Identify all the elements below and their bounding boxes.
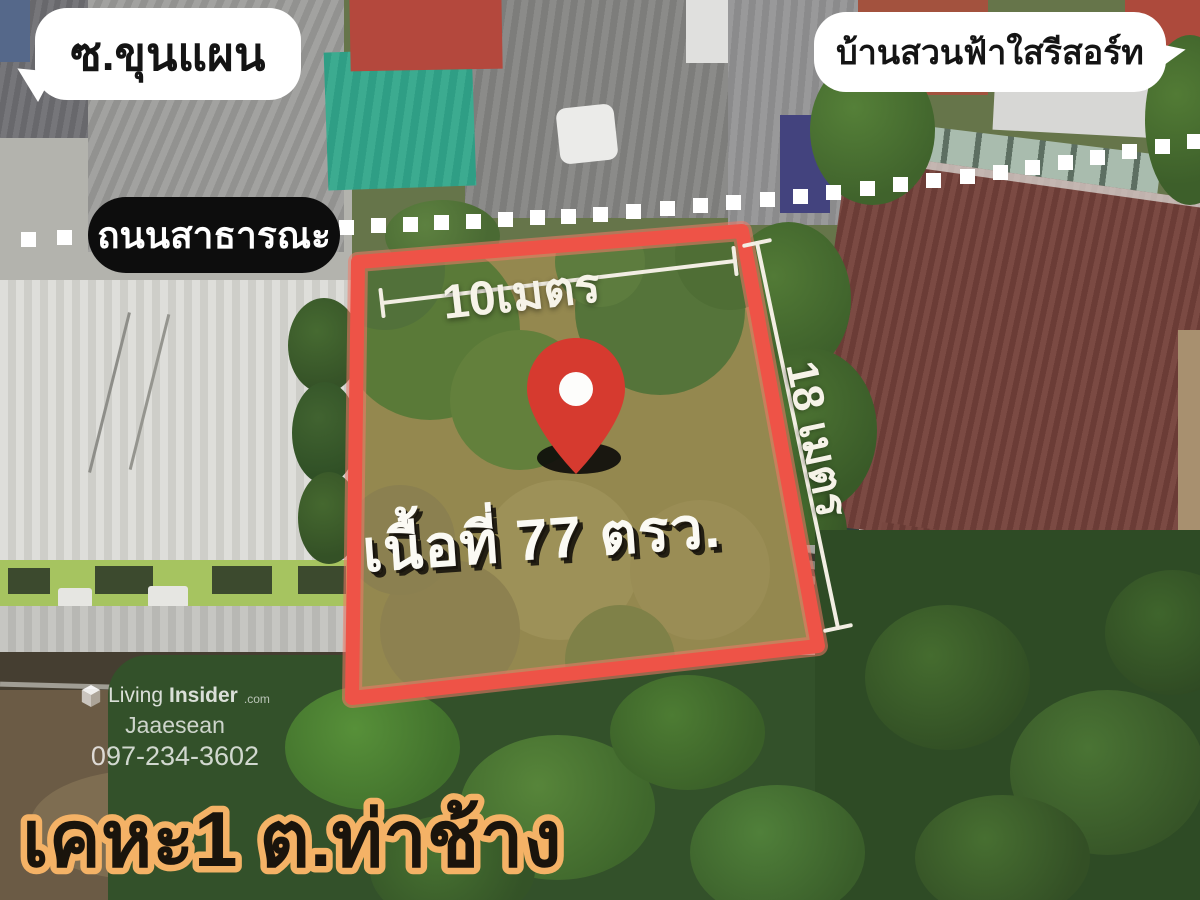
lower-roof-strip	[0, 606, 356, 658]
public-road-label-pill: ถนนสาธารณะ	[88, 197, 340, 273]
dotted-line-square	[926, 173, 941, 188]
dotted-line-square	[693, 198, 708, 213]
public-road-label: ถนนสาธารณะ	[97, 206, 331, 265]
dotted-line-square	[434, 215, 449, 230]
white-car	[555, 103, 619, 165]
dotted-line-square	[1187, 134, 1200, 149]
aerial-photo-canvas: ซ.ขุนแผน บ้านสวนฟ้าใสรีสอร์ท ถนนสาธารณะ …	[0, 0, 1200, 900]
dotted-line-square	[57, 230, 72, 245]
tree-mass	[865, 605, 1030, 750]
dotted-line-square	[1090, 150, 1105, 165]
dotted-line-square	[1025, 160, 1040, 175]
dotted-line-square	[593, 207, 608, 222]
window	[212, 566, 272, 594]
dotted-line-square	[993, 165, 1008, 180]
dotted-line-square	[760, 192, 775, 207]
dotted-line-square	[561, 209, 576, 224]
dotted-line-square	[893, 177, 908, 192]
dotted-line-square	[498, 212, 513, 227]
dotted-line-square	[793, 189, 808, 204]
street-label-bubble: ซ.ขุนแผน	[35, 8, 301, 100]
dotted-line-square	[660, 201, 675, 216]
watermark: LivingInsider.com Jaaesean 097-234-3602	[50, 684, 300, 772]
dotted-line-square	[1058, 155, 1073, 170]
dotted-line-square	[466, 214, 481, 229]
dotted-line-square	[726, 195, 741, 210]
livinginsider-cube-icon	[80, 684, 102, 708]
watermark-phone-number: 097-234-3602	[50, 741, 300, 772]
banana-clump	[610, 675, 765, 790]
window	[298, 566, 346, 594]
dotted-line-square	[371, 218, 386, 233]
window	[8, 568, 50, 594]
solar-panel	[0, 0, 30, 62]
dotted-line-square	[1155, 139, 1170, 154]
green-building-wall	[0, 560, 356, 608]
ac-unit	[58, 588, 92, 608]
dotted-line-square	[403, 217, 418, 232]
tree-left-of-plot	[298, 472, 360, 564]
tree-left-of-plot	[288, 298, 360, 393]
tree-left-of-plot	[292, 382, 358, 484]
street-label: ซ.ขุนแผน	[71, 18, 266, 91]
red-roof-top	[349, 0, 502, 71]
watermark-brand-row: LivingInsider.com	[50, 684, 300, 708]
dotted-line-square	[860, 181, 875, 196]
watermark-agent-name: Jaaesean	[50, 712, 300, 739]
dotted-line-square	[1122, 144, 1137, 159]
resort-label: บ้านสวนฟ้าใสรีสอร์ท	[836, 25, 1144, 79]
ac-unit	[148, 586, 188, 608]
watermark-living: Living	[108, 684, 163, 708]
dotted-line-square	[960, 169, 975, 184]
watermark-insider: Insider	[169, 684, 238, 708]
location-caption: เคหะ1 ต.ท่าช้าง	[8, 778, 568, 900]
resort-label-bubble: บ้านสวนฟ้าใสรีสอร์ท	[814, 12, 1166, 92]
dotted-line-square	[530, 210, 545, 225]
dotted-line-square	[21, 232, 36, 247]
window	[95, 566, 153, 594]
tan-wall-right	[1178, 330, 1200, 540]
dotted-line-square	[826, 185, 841, 200]
location-caption-text: เคหะ1 ต.ท่าช้าง	[22, 795, 562, 883]
dotted-line-square	[339, 220, 354, 235]
dotted-line-square	[626, 204, 641, 219]
watermark-tld: .com	[244, 692, 270, 708]
